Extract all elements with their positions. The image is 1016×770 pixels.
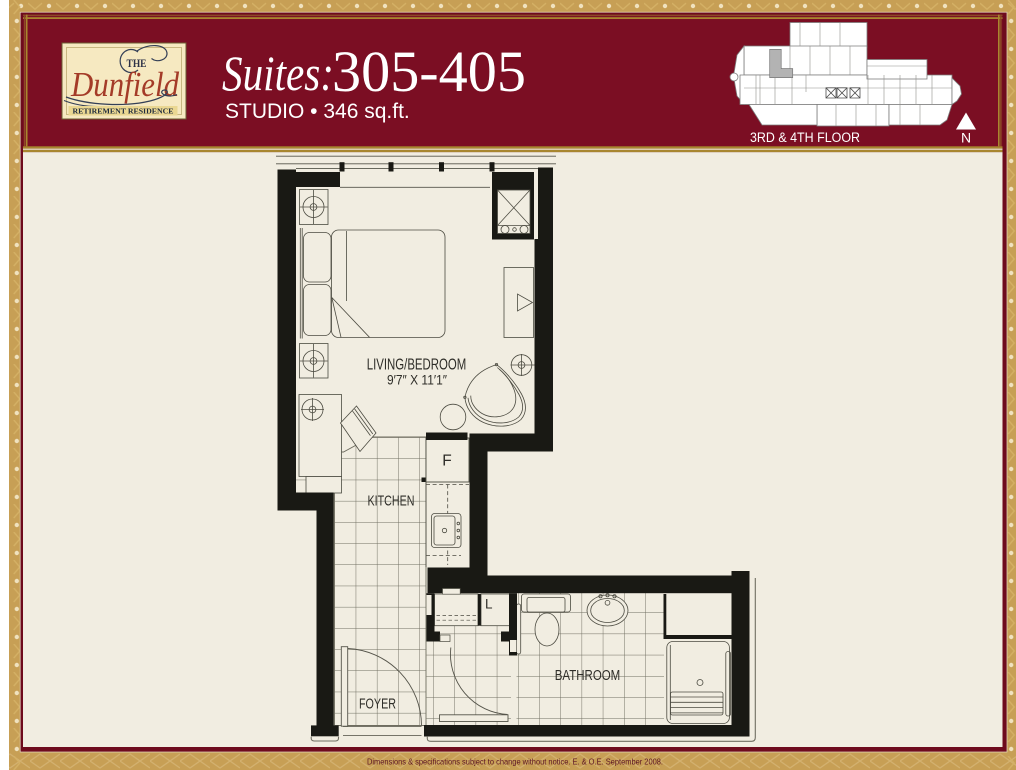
svg-text:Dimensions & specifications su: Dimensions & specifications subject to c…: [367, 757, 663, 767]
svg-text:N: N: [961, 130, 971, 146]
svg-text:STUDIO • 346 sq.ft.: STUDIO • 346 sq.ft.: [225, 100, 410, 123]
svg-text:3RD & 4TH FLOOR: 3RD & 4TH FLOOR: [750, 130, 860, 145]
svg-text:L: L: [485, 597, 493, 612]
svg-text:Dunfield: Dunfield: [70, 65, 179, 104]
svg-text:KITCHEN: KITCHEN: [368, 493, 415, 510]
svg-text:RETIREMENT RESIDENCE: RETIREMENT RESIDENCE: [73, 107, 174, 116]
svg-text:F: F: [442, 453, 451, 470]
svg-text:Suites:: Suites:: [222, 45, 334, 101]
svg-text:305-405: 305-405: [332, 39, 526, 104]
svg-text:9′7″ X 11′1″: 9′7″ X 11′1″: [387, 372, 447, 388]
svg-text:BATHROOM: BATHROOM: [555, 667, 621, 684]
svg-text:FOYER: FOYER: [359, 696, 396, 713]
